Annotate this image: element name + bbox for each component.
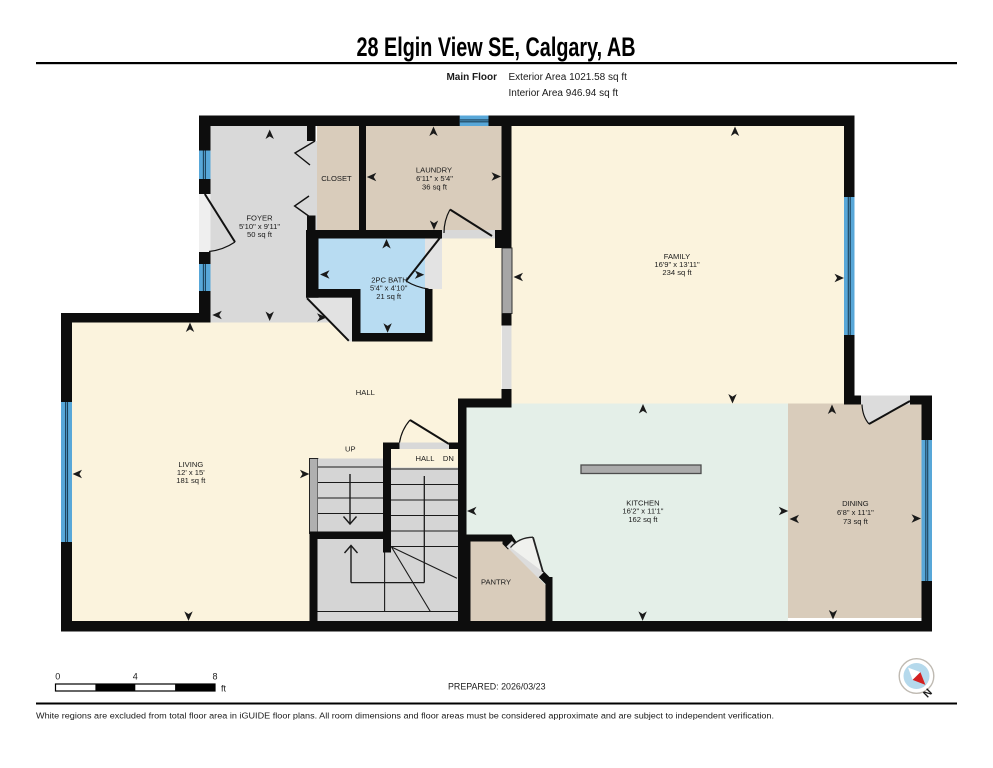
svg-text:36 sq ft: 36 sq ft [422, 183, 448, 192]
svg-text:Main Floor: Main Floor [446, 72, 497, 83]
svg-text:PREPARED: 2026/03/23: PREPARED: 2026/03/23 [448, 682, 546, 692]
svg-text:4: 4 [133, 672, 138, 682]
svg-text:234 sq ft: 234 sq ft [662, 268, 692, 277]
svg-text:Exterior Area 1021.58 sq ft: Exterior Area 1021.58 sq ft [509, 72, 628, 83]
svg-text:UP: UP [345, 445, 356, 454]
svg-text:PANTRY: PANTRY [481, 577, 511, 586]
svg-text:HALL: HALL [356, 388, 375, 397]
svg-text:50 sq ft: 50 sq ft [247, 230, 273, 239]
svg-text:CLOSET: CLOSET [321, 174, 352, 183]
svg-text:181 sq ft: 181 sq ft [176, 476, 206, 485]
svg-text:DN: DN [443, 454, 454, 463]
svg-text:21 sq ft: 21 sq ft [376, 292, 402, 301]
svg-text:162 sq ft: 162 sq ft [628, 515, 658, 524]
svg-text:ft: ft [221, 684, 227, 694]
svg-text:6'8" x 11'1": 6'8" x 11'1" [837, 508, 874, 517]
svg-text:Interior Area 946.94 sq ft: Interior Area 946.94 sq ft [509, 88, 619, 99]
svg-text:28 Elgin View SE, Calgary, AB: 28 Elgin View SE, Calgary, AB [357, 32, 636, 62]
svg-text:0: 0 [55, 672, 60, 682]
svg-text:DINING: DINING [842, 499, 869, 508]
svg-text:73 sq ft: 73 sq ft [843, 517, 869, 526]
svg-text:8: 8 [212, 672, 217, 682]
svg-text:HALL: HALL [416, 454, 435, 463]
svg-text:White regions are excluded fro: White regions are excluded from total fl… [36, 712, 774, 721]
